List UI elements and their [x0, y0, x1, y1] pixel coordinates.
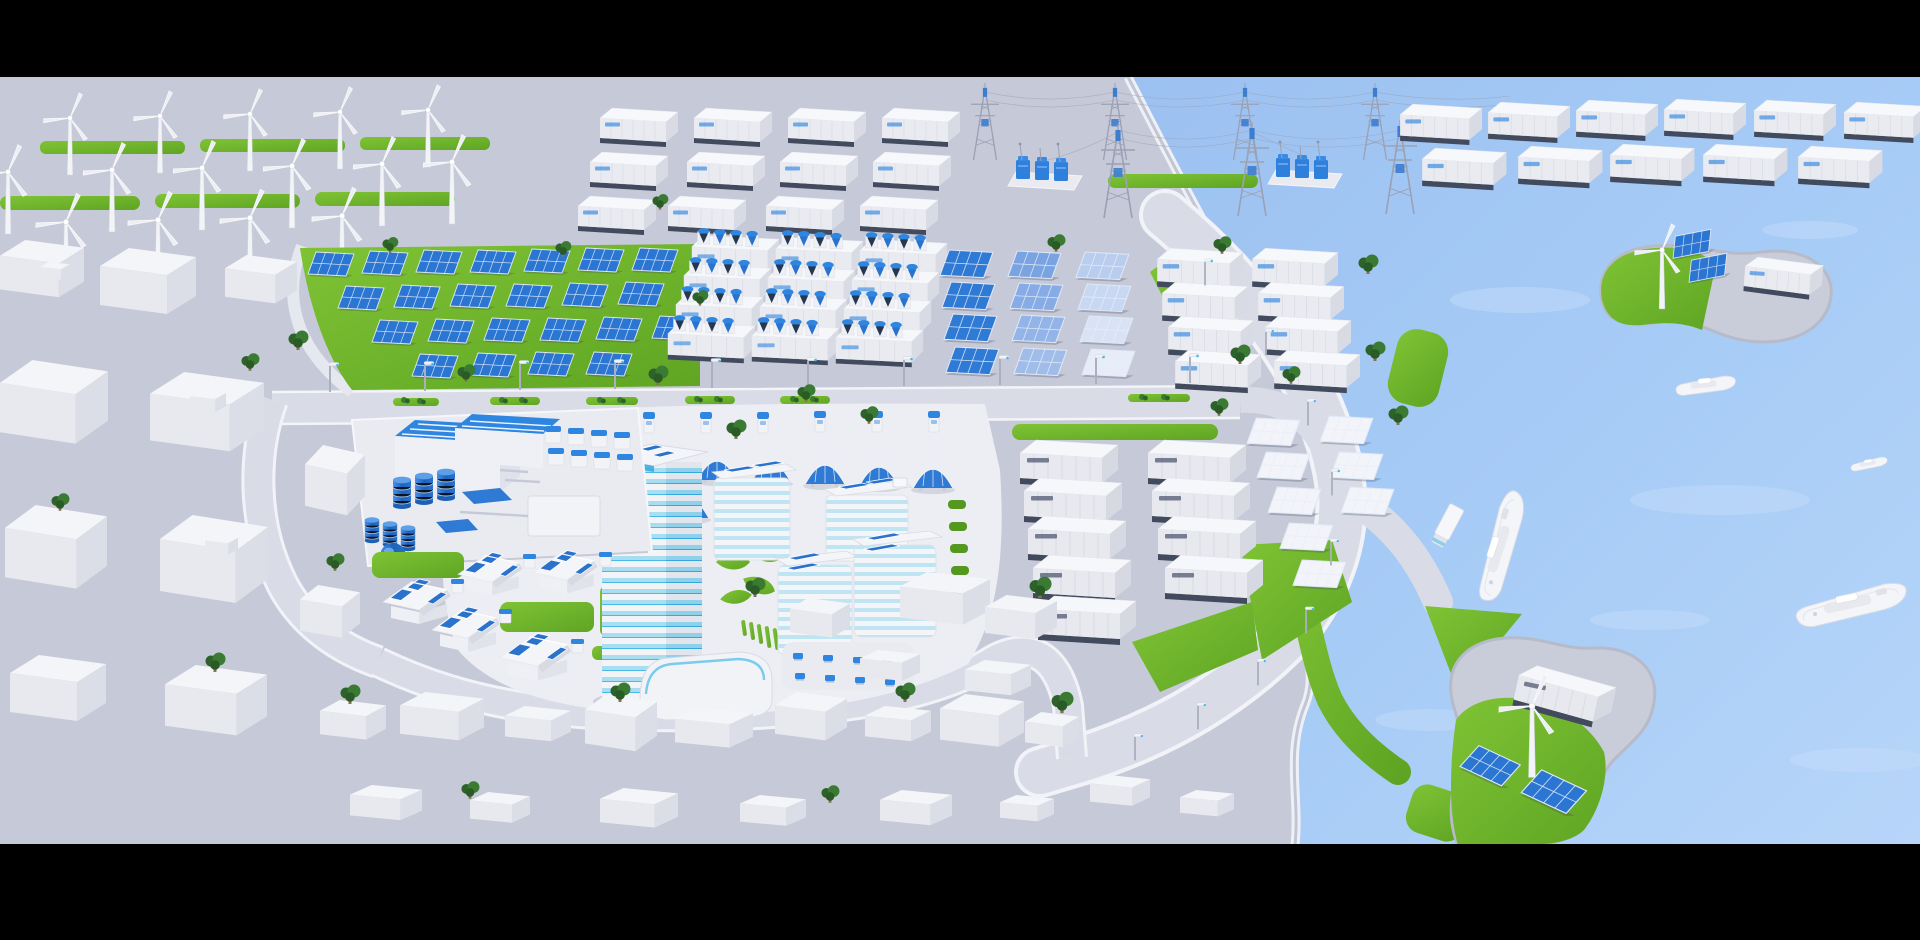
letterbox-bottom [0, 844, 1920, 940]
storage-containers [1157, 248, 1360, 393]
rooftop-box [40, 262, 70, 280]
solar-panel [528, 352, 574, 378]
city-block [0, 360, 108, 444]
coastal-container [1664, 99, 1746, 140]
median [393, 398, 439, 406]
yard-container [1165, 555, 1263, 604]
city-block [600, 788, 678, 828]
picnic-table [825, 675, 835, 683]
city-block [585, 694, 657, 751]
solar-panel [470, 353, 516, 379]
ev-charger [643, 412, 655, 433]
picnic-table [823, 655, 833, 663]
city-block [675, 708, 753, 748]
coastal-container [1844, 102, 1920, 143]
battery-container [766, 196, 844, 235]
solar-panel [1076, 252, 1129, 282]
city-block [320, 700, 386, 740]
coastal-container [1703, 144, 1787, 186]
plant [352, 408, 652, 572]
city-block [740, 795, 806, 826]
city-block [880, 790, 952, 825]
city-block [790, 598, 850, 638]
city-block [225, 255, 297, 303]
battery-container [860, 196, 938, 235]
ev-charger [757, 412, 769, 433]
heat-pump [599, 552, 612, 566]
letterbox-top [0, 0, 1920, 77]
solar-panel [596, 317, 642, 343]
solar-panel [470, 250, 516, 276]
grass-strip [1108, 174, 1258, 188]
city-block [865, 706, 931, 741]
solar-panel [394, 285, 440, 311]
storage-tank [393, 477, 411, 509]
solar-panel [412, 354, 458, 380]
picnic-table [885, 679, 895, 687]
hall-wall [455, 428, 543, 468]
grass-strip [0, 196, 140, 210]
city-block [150, 372, 264, 451]
city-block [1180, 790, 1234, 816]
city-block [160, 515, 268, 603]
coastal-container [1488, 102, 1570, 143]
solar-panel [1080, 316, 1133, 346]
lawn [372, 552, 464, 578]
pcs-units [668, 228, 947, 367]
city-block [300, 585, 360, 638]
solar-panel [586, 352, 632, 378]
grass-strip [315, 192, 455, 206]
city-block [900, 572, 990, 625]
letterboxed-render [0, 0, 1920, 940]
solar-panel [618, 282, 664, 308]
storage-tank [415, 473, 433, 505]
city-block [940, 694, 1024, 747]
city-block [400, 692, 484, 740]
storage-tank [365, 517, 379, 543]
solar-panel-white [1268, 487, 1321, 517]
battery-container [578, 196, 656, 235]
city-block [100, 248, 196, 314]
grass-strip [155, 194, 300, 208]
solar-panel [362, 251, 408, 277]
ev-charger [700, 412, 712, 433]
city-block [775, 692, 847, 740]
solar-panel [484, 318, 530, 344]
solar-panel [1010, 283, 1063, 313]
solar-panel [338, 286, 384, 312]
solar-panel [1082, 349, 1135, 379]
solar-panel [506, 284, 552, 310]
solar-panel [372, 320, 418, 346]
coastal-container [1400, 104, 1482, 145]
solar-panel [946, 347, 999, 377]
picnic-table [795, 673, 805, 681]
grass-strip [360, 137, 490, 150]
storage-container [1175, 350, 1261, 393]
solar-panel [562, 283, 608, 309]
median [490, 397, 540, 405]
city-block [505, 706, 571, 741]
heat-pump [571, 639, 584, 653]
battery-container [687, 152, 765, 191]
solar-panel [944, 314, 997, 344]
city-block [1025, 712, 1079, 747]
grass-strip [40, 141, 185, 154]
lawn [500, 602, 594, 632]
battery-container [788, 108, 866, 147]
solar-panel [308, 252, 354, 278]
roof-box [893, 478, 907, 487]
solar-panel [450, 284, 496, 310]
solar-panel [1078, 284, 1131, 314]
coastal-container [1754, 100, 1836, 141]
solar-panel-white [1293, 560, 1346, 590]
solar-farm [300, 244, 700, 390]
storage-tank [437, 469, 455, 501]
battery-container [694, 108, 772, 147]
city-block [10, 655, 106, 721]
picnic-table [855, 677, 865, 685]
city-block [165, 665, 267, 735]
solar-panel-white [1341, 487, 1394, 517]
plant-shed [528, 496, 600, 536]
solar-panel-white [1257, 452, 1310, 482]
median [1128, 394, 1190, 402]
city-block [860, 650, 920, 681]
solar-panel-white [1330, 452, 1383, 482]
solar-panel-white [1247, 418, 1300, 448]
solar-panel [416, 250, 462, 276]
coastal-container [1518, 146, 1602, 188]
rooftop-box [190, 390, 226, 412]
median [586, 397, 638, 405]
solar-panel [940, 250, 993, 280]
city-block [470, 792, 530, 823]
heat-pump [523, 554, 536, 568]
battery-container [780, 152, 858, 191]
solar-panel [1008, 251, 1061, 281]
green-strip [1012, 424, 1218, 440]
city-block [350, 785, 422, 820]
solar-panel [540, 318, 586, 344]
coastal-container [1576, 100, 1658, 141]
coastal-container [1422, 148, 1506, 190]
coastal-container [1610, 144, 1694, 186]
battery-container [873, 152, 951, 191]
city-block [1000, 795, 1054, 821]
city-block [965, 660, 1031, 695]
solar-panel-white [1280, 523, 1333, 553]
heat-pump [499, 609, 512, 623]
coastal-container [1798, 146, 1882, 188]
solar-panel [1012, 315, 1065, 345]
ev-charger [814, 411, 826, 432]
grass-strip [200, 139, 345, 152]
solar-panel [578, 248, 624, 274]
battery-container [590, 152, 668, 191]
solar-panel [1014, 348, 1067, 378]
storage-tank [401, 525, 415, 551]
city-block [1090, 775, 1150, 806]
battery-container [882, 108, 960, 147]
solar-panel [942, 282, 995, 312]
battery-container [600, 108, 678, 147]
heat-pump [451, 579, 464, 593]
picnic-table [793, 653, 803, 661]
rooftop-box [205, 535, 238, 555]
ev-charger [928, 411, 940, 432]
city-block [985, 595, 1057, 639]
solar-panel [632, 248, 678, 274]
scene-canvas [0, 0, 1920, 940]
midrise-body [714, 478, 790, 560]
city-block [305, 445, 365, 515]
city-block [5, 505, 107, 589]
solar-panel [428, 319, 474, 345]
solar-panel-white [1320, 416, 1373, 446]
median [685, 396, 735, 404]
